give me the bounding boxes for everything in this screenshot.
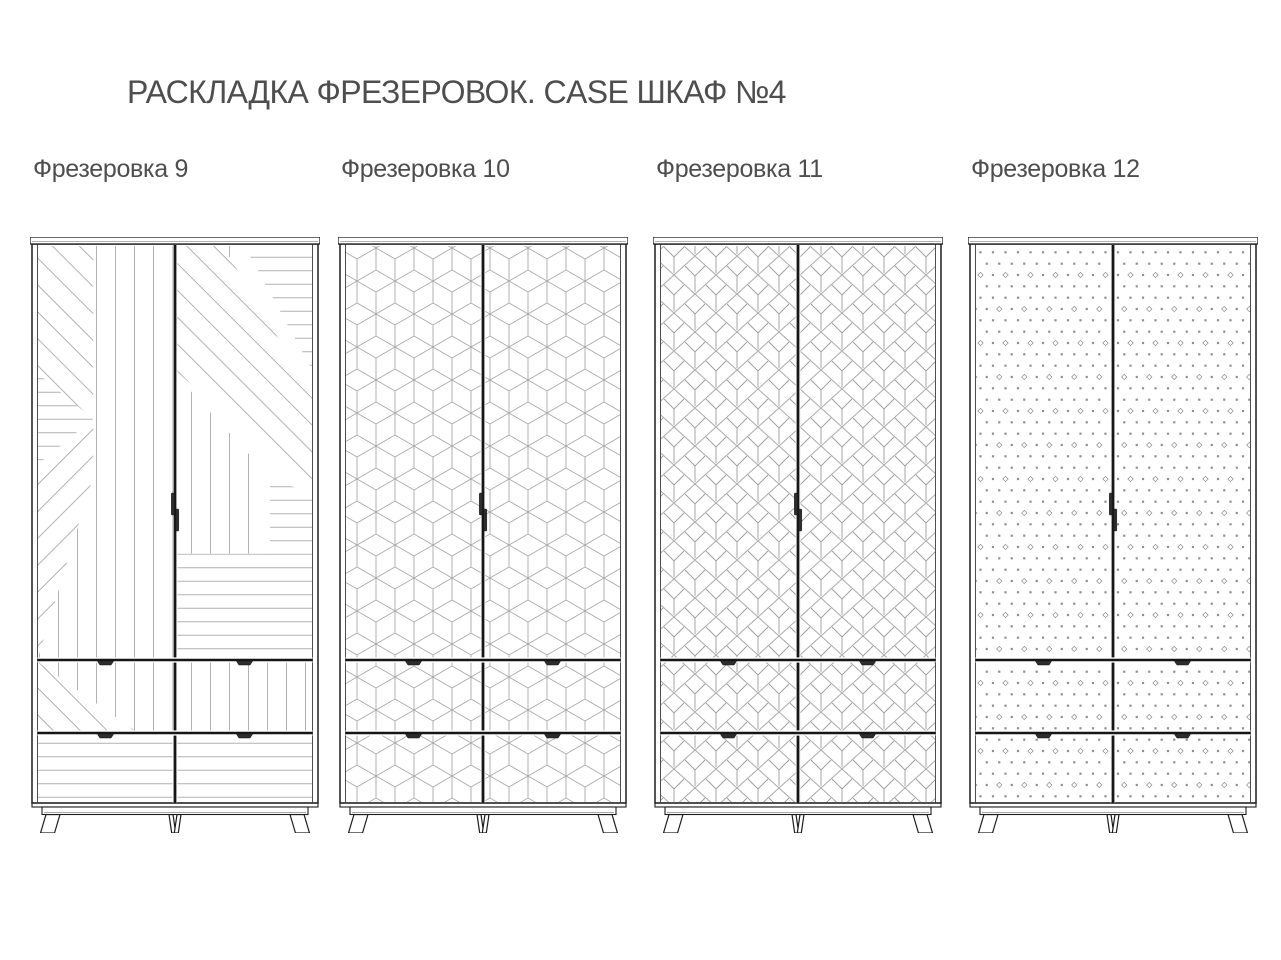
wardrobe-drawing-milling-12 [968,237,1258,833]
cabinet-figure-milling-10: Фрезеровка 10 [338,155,630,833]
cabinet-label: Фрезеровка 12 [971,155,1260,183]
cabinet-figure-milling-11: Фрезеровка 11 [653,155,945,833]
cabinet-figure-milling-12: Фрезеровка 12 [968,155,1260,833]
wardrobe-svg [338,237,628,833]
cabinet-label: Фрезеровка 11 [656,155,945,183]
cabinet-label: Фрезеровка 9 [33,155,322,183]
cabinet-figure-milling-9: Фрезеровка 9 [30,155,322,833]
milling-layout-sheet: РАСКЛАДКА ФРЕЗЕРОВОК. CASE ШКАФ №4 Фрезе… [0,0,1281,960]
wardrobe-svg [30,237,320,833]
wardrobe-drawing-milling-11 [653,237,943,833]
wardrobe-drawing-milling-10 [338,237,628,833]
wardrobe-svg [653,237,943,833]
wardrobe-drawing-milling-9 [30,237,320,833]
wardrobe-svg [968,237,1258,833]
page-title: РАСКЛАДКА ФРЕЗЕРОВОК. CASE ШКАФ №4 [127,74,786,111]
cabinet-label: Фрезеровка 10 [341,155,630,183]
